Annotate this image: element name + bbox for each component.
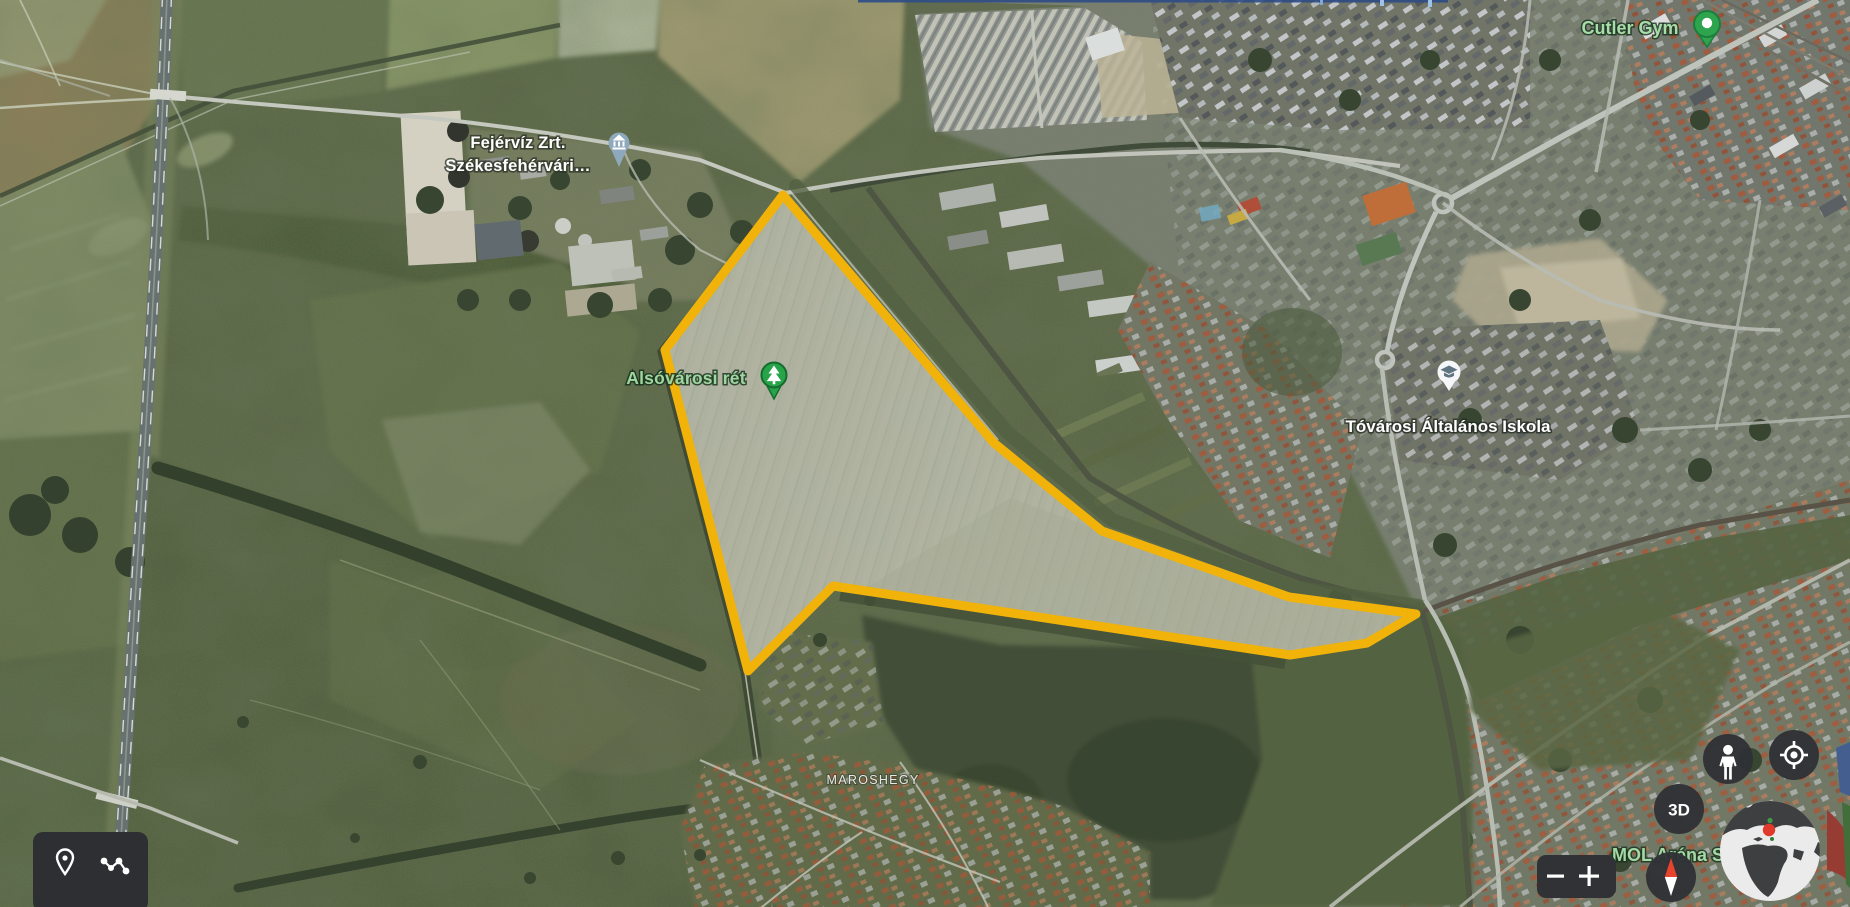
svg-text:Alsóvárosi rét: Alsóvárosi rét [626,368,746,388]
svg-text:Székesfehérvári…: Székesfehérvári… [445,157,590,175]
svg-text:3D: 3D [1668,801,1690,820]
svg-text:MAROSHEGY: MAROSHEGY [827,773,920,787]
svg-text:Cutler Gym: Cutler Gym [1581,18,1678,38]
svg-text:Tóvárosi Általános Iskola: Tóvárosi Általános Iskola [1345,417,1551,436]
svg-text:Fejérvíz Zrt.: Fejérvíz Zrt. [470,134,565,152]
